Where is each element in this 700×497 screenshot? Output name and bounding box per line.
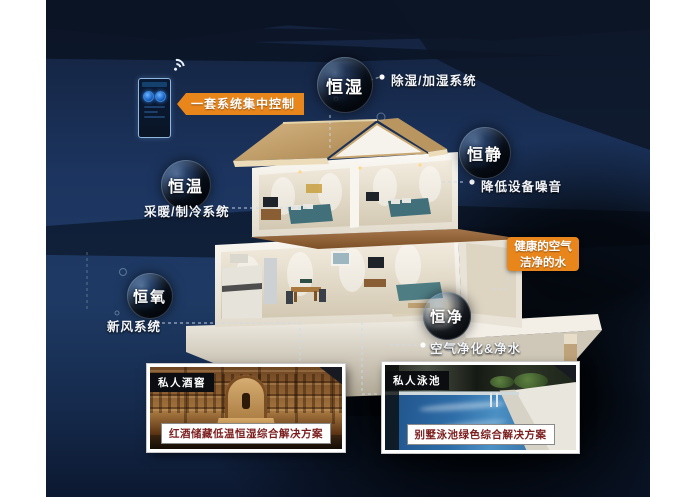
bubble-constant-humidity: 恒湿 bbox=[317, 57, 373, 113]
highlight-line2: 洁净的水 bbox=[507, 255, 579, 271]
card-tag: 私人酒窖 bbox=[150, 373, 214, 392]
bubble-label: 恒氧 bbox=[133, 286, 167, 307]
wine-cellar-photo: 私人酒窖 红酒储藏低温恒湿综合解决方案 bbox=[150, 367, 342, 449]
panel-screen-header bbox=[142, 82, 167, 87]
card-wine-cellar: 私人酒窖 红酒储藏低温恒湿综合解决方案 bbox=[147, 364, 345, 452]
bubble-label: 恒湿 bbox=[326, 73, 364, 98]
highlight-box: 健康的空气 洁净的水 bbox=[507, 237, 579, 271]
panel-knob bbox=[143, 91, 154, 102]
bubble-label: 恒静 bbox=[467, 141, 503, 165]
bubble-label: 恒温 bbox=[168, 173, 204, 197]
note-noise-reduction: 降低设备噪音 bbox=[481, 176, 562, 195]
card-pool: 私人泳池 别墅泳池绿色综合解决方案 bbox=[382, 362, 579, 453]
bubble-label: 恒净 bbox=[430, 306, 464, 327]
panel-row bbox=[144, 111, 158, 113]
card-tag: 私人泳池 bbox=[385, 371, 449, 390]
panel-knob bbox=[155, 91, 166, 102]
note-heating-cooling: 采暖/制冷系统 bbox=[144, 201, 229, 220]
panel-knobs bbox=[142, 90, 167, 103]
note-dehumidify-system: 除湿/加湿系统 bbox=[391, 70, 476, 89]
pool-photo: 私人泳池 别墅泳池绿色综合解决方案 bbox=[385, 365, 576, 450]
bubble-constant-clean: 恒净 bbox=[423, 292, 471, 340]
panel-row bbox=[144, 116, 165, 118]
bubble-constant-quiet: 恒静 bbox=[459, 127, 511, 179]
note-fresh-air: 新风系统 bbox=[107, 316, 161, 335]
note-purification: 空气净化&净水 bbox=[430, 338, 521, 357]
highlight-line1: 健康的空气 bbox=[507, 239, 579, 255]
bubble-constant-oxygen: 恒氧 bbox=[127, 273, 173, 319]
panel-row bbox=[144, 106, 165, 108]
card-caption: 红酒储藏低温恒湿综合解决方案 bbox=[161, 423, 331, 444]
control-label: 一套系统集中控制 bbox=[177, 93, 304, 115]
smart-control-panel bbox=[138, 78, 171, 138]
poster: 一套系统集中控制 恒湿 恒静 恒温 恒氧 恒净 除湿/加湿系统 降低设备噪音 采… bbox=[0, 0, 700, 497]
card-caption: 别墅泳池绿色综合解决方案 bbox=[407, 424, 555, 445]
